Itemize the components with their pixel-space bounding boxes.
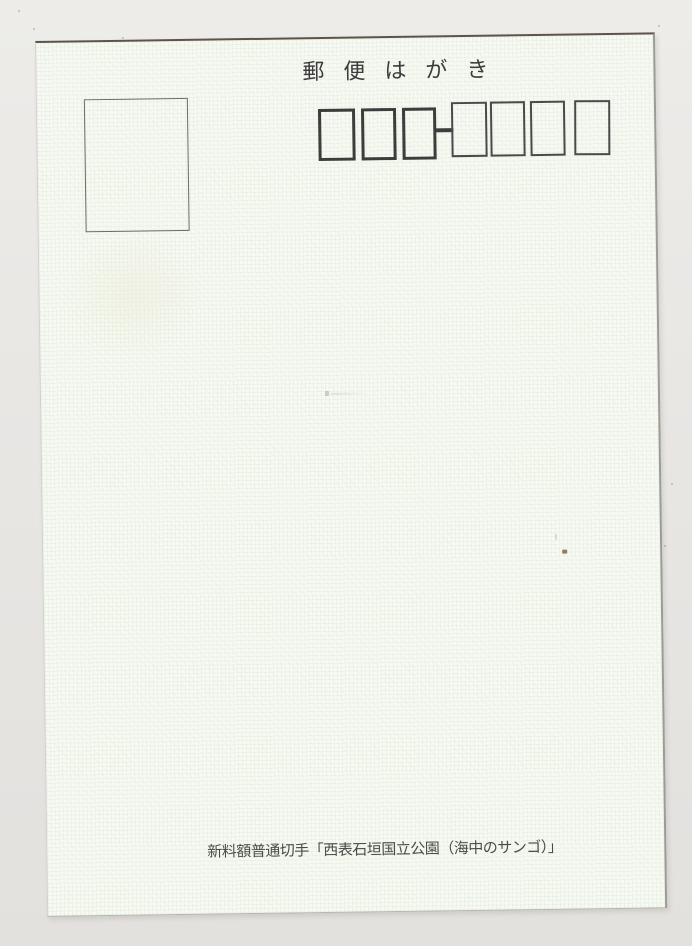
postal-code-field bbox=[318, 100, 614, 161]
postal-code-box-4 bbox=[451, 102, 488, 157]
dust-speck bbox=[664, 545, 666, 547]
paper-speck bbox=[555, 534, 557, 540]
dust-speck bbox=[33, 28, 35, 30]
postal-code-box-5 bbox=[490, 101, 526, 156]
postal-code-box-7 bbox=[574, 100, 610, 155]
paper-speck bbox=[562, 550, 567, 554]
postal-code-box-1 bbox=[318, 109, 356, 162]
paper-speck bbox=[325, 391, 329, 396]
dust-speck bbox=[671, 483, 673, 485]
postal-code-box-6 bbox=[530, 101, 566, 156]
postal-code-box-3 bbox=[402, 107, 437, 159]
stamp-area-box bbox=[84, 98, 190, 232]
postcard-title: 郵便はがき bbox=[302, 56, 507, 85]
dust-speck bbox=[18, 10, 20, 12]
dust-speck bbox=[122, 37, 124, 39]
postal-code-box-2 bbox=[361, 108, 397, 160]
dust-speck bbox=[658, 25, 660, 27]
stamp-caption-note: 新料額普通切手「西表石垣国立公園（海中のサンゴ）」 bbox=[207, 839, 562, 862]
scanner-background: 郵便はがき 新料額普通切手「西表石垣国立公園（海中のサンゴ）」 bbox=[0, 0, 692, 946]
paper-smudge bbox=[331, 392, 369, 395]
postcard: 郵便はがき 新料額普通切手「西表石垣国立公園（海中のサンゴ）」 bbox=[35, 32, 667, 917]
